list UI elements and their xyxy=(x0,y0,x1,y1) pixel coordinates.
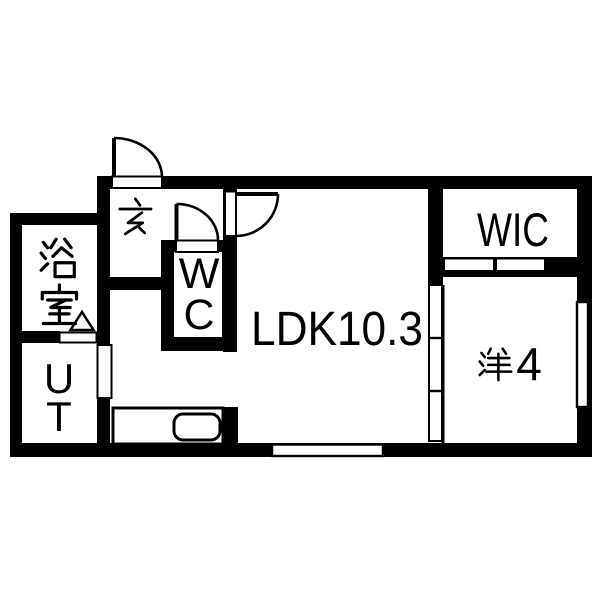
wall-hall-bottom xyxy=(97,277,162,290)
entrance-threshold xyxy=(112,177,162,189)
floor-plan: W C U T LDK10.3 WIC 4 xyxy=(0,0,600,600)
kitchen xyxy=(113,408,223,444)
entrance-hinged-door xyxy=(114,138,162,177)
western-room-kanji xyxy=(480,349,511,380)
wc-hinged-door xyxy=(177,204,219,240)
bath-ut-threshold xyxy=(60,333,97,343)
wall-hall-left-lower xyxy=(97,398,110,445)
ldk-hinged-door xyxy=(236,194,278,236)
bathroom-label xyxy=(41,239,76,323)
wall-top xyxy=(98,176,592,189)
wall-bath-ut-divider xyxy=(22,331,60,343)
wall-bathroom-top xyxy=(10,213,110,225)
bathroom-char-1 xyxy=(41,239,74,276)
ut-label-line2: T xyxy=(46,393,72,440)
wall-kitchen-stub xyxy=(223,407,238,445)
right-wall-window xyxy=(577,302,588,407)
ut-sliding-door xyxy=(98,345,112,398)
bathroom-door-triangle-marker xyxy=(71,312,94,330)
genkan-label xyxy=(120,199,151,234)
ldk-door-arc xyxy=(236,194,278,236)
entrance-door-arc xyxy=(114,138,162,177)
wc-door-arc xyxy=(177,204,219,240)
ldk-western-slide-panels xyxy=(429,285,442,441)
kitchen-sink xyxy=(174,414,220,440)
wic-label: WIC xyxy=(477,203,549,256)
bathroom-char-2 xyxy=(42,285,76,324)
floor-plan-page: W C U T LDK10.3 WIC 4 xyxy=(0,0,600,600)
wc-label-line2: C xyxy=(183,291,214,339)
wall-left xyxy=(10,213,22,457)
western-room-label: 4 xyxy=(480,338,542,390)
ldk-label: LDK10.3 xyxy=(251,303,423,356)
wic-slide-panel-1 xyxy=(444,259,494,272)
ldk-door-opening xyxy=(225,192,236,237)
room-labels: W C U T LDK10.3 WIC 4 xyxy=(41,199,549,440)
wic-slide-panel-2 xyxy=(496,259,545,272)
bottom-wall-window xyxy=(272,445,383,457)
wall-hall-left-upper xyxy=(97,176,110,345)
western-room-number: 4 xyxy=(516,338,542,390)
